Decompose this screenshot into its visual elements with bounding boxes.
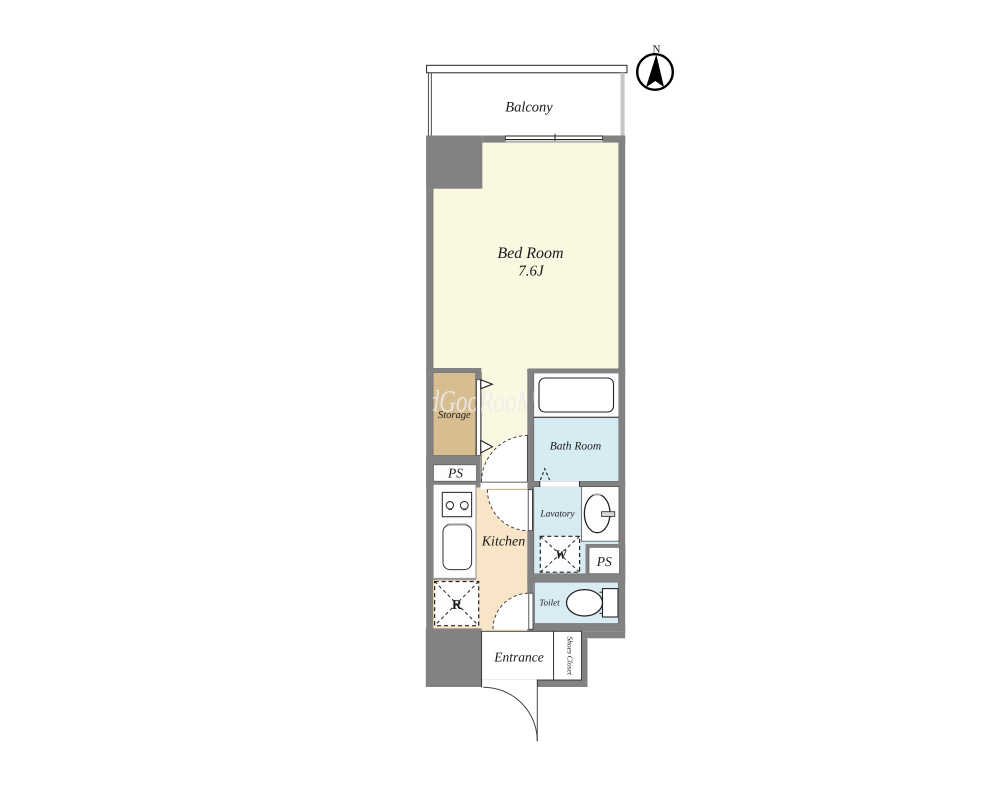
svg-text:7.6J: 7.6J — [518, 264, 545, 280]
svg-text:Bed Room: Bed Room — [497, 245, 563, 262]
svg-text:W: W — [555, 548, 567, 562]
svg-text:Storage: Storage — [438, 410, 471, 421]
svg-text:Kitchen: Kitchen — [481, 535, 526, 550]
svg-text:Entrance: Entrance — [493, 649, 544, 664]
svg-text:Bath Room: Bath Room — [550, 440, 601, 452]
svg-text:R: R — [452, 597, 462, 612]
svg-text:Balcony: Balcony — [505, 100, 553, 116]
svg-text:Shoes Closet: Shoes Closet — [566, 636, 575, 675]
svg-text:PS: PS — [447, 466, 463, 481]
svg-text:Lavatory: Lavatory — [539, 510, 575, 520]
svg-text:N: N — [653, 44, 661, 56]
svg-text:PS: PS — [596, 554, 612, 569]
svg-text:Toilet: Toilet — [539, 598, 560, 608]
